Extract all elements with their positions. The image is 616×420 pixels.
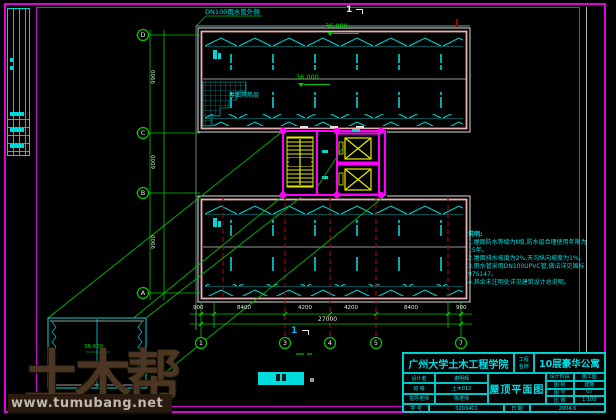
field-value: 1:100 <box>574 396 605 404</box>
grid-bubble-number: 7 <box>456 340 466 347</box>
field-value: 0203401 <box>429 404 504 413</box>
field-label: 设计阶段 <box>546 373 574 381</box>
dim-segment: 4200 <box>298 306 312 312</box>
notes-block: 说明: 1.屋面防水等级为Ⅱ级,防水层合理使用年限为15年。2.屋面排水坡度为2… <box>468 231 594 287</box>
grid-bubble-letter: C <box>138 130 148 137</box>
notes-title: 说明: <box>468 231 594 239</box>
grid-bubble-number: 5 <box>371 340 381 347</box>
grid-bubble-number: 4 <box>325 340 335 347</box>
note-line: 4.其余未注明处详见建筑设计总说明。 <box>468 279 594 287</box>
elevation-marker-mid: 36.000 <box>296 64 330 87</box>
project-name-label: 工程 名称 <box>514 353 534 373</box>
cad-drawing-canvas: DN100雨水管外侧 1 36.000 36.000 屋面隔热层 36.600 … <box>0 0 616 420</box>
dim-segment-left: 9900 <box>152 235 158 249</box>
dim-segment-left: 6000 <box>152 155 158 169</box>
field-value: 谢明辉 <box>435 373 488 383</box>
field-value: 陈老师 <box>435 394 488 404</box>
dim-segment-left: 9900 <box>152 70 158 84</box>
field-label: 学 号 <box>403 404 429 413</box>
field-label: 指导老师 <box>403 394 435 404</box>
dim-segment: 900 <box>456 306 467 312</box>
note-line: 1.屋面防水等级为Ⅱ级,防水层合理使用年限为15年。 <box>468 239 594 255</box>
grid-bubble-letter: A <box>138 290 148 297</box>
field-label: 图 别 <box>546 381 574 389</box>
dim-segment: 8400 <box>237 306 251 312</box>
section-corner-bottom <box>302 330 309 335</box>
title-block: 广州大学土木工程学院 工程 名称 10层豪华公寓 设计者谢明辉班 级土木012指… <box>402 352 606 412</box>
signoff-table-right: 设计阶段施工图图 别建施图 号07比 例1:100 <box>546 373 605 404</box>
signoff-table-left: 设计者谢明辉班 级土木012指导老师陈老师 <box>403 373 488 404</box>
dim-segment: 8400 <box>404 306 418 312</box>
field-value: 施工图 <box>574 373 605 381</box>
field-label: 比 例 <box>546 396 574 404</box>
signoff-table-bottom: 学 号0203401日 期2004.6 <box>403 404 605 413</box>
field-label: 班 级 <box>403 383 435 393</box>
note-line: 3.雨水管采用DN100UPVC管,做法详见国标97S147。 <box>468 263 594 279</box>
project-name: 10层豪华公寓 <box>534 353 605 373</box>
grid-bubble-number: 1 <box>196 340 206 347</box>
watermark-url: www.tumubang.net <box>8 394 172 414</box>
pipe-label: DN100雨水管外侧 <box>205 9 260 16</box>
field-value: 07 <box>574 389 605 397</box>
grid-bubble-letter: D <box>138 32 148 39</box>
dim-segment: 4200 <box>344 306 358 312</box>
institution-name: 广州大学土木工程学院 <box>403 353 514 373</box>
grid-bubble-number: 3 <box>280 340 290 347</box>
field-value: 土木012 <box>435 383 488 393</box>
drawing-title: 屋顶平面图 <box>488 373 545 404</box>
dim-segment: 900 <box>193 306 204 312</box>
field-label: 设计者 <box>403 373 435 383</box>
insulation-label: 屋面隔热层 <box>229 93 259 99</box>
stamp-badge <box>258 372 304 385</box>
elevation-marker-top: 36.000 <box>325 13 359 36</box>
field-value: 建施 <box>574 381 605 389</box>
note-line: 2.屋面排水坡度为2%,天沟纵向坡度为1%。 <box>468 255 594 263</box>
dim-total: 27000 <box>318 317 337 323</box>
grid-bubble-letter: B <box>138 190 148 197</box>
field-label: 日 期 <box>504 404 530 413</box>
field-value: 2004.6 <box>530 404 605 413</box>
field-label: 图 号 <box>546 389 574 397</box>
section-mark-bottom: 1 <box>291 327 297 336</box>
